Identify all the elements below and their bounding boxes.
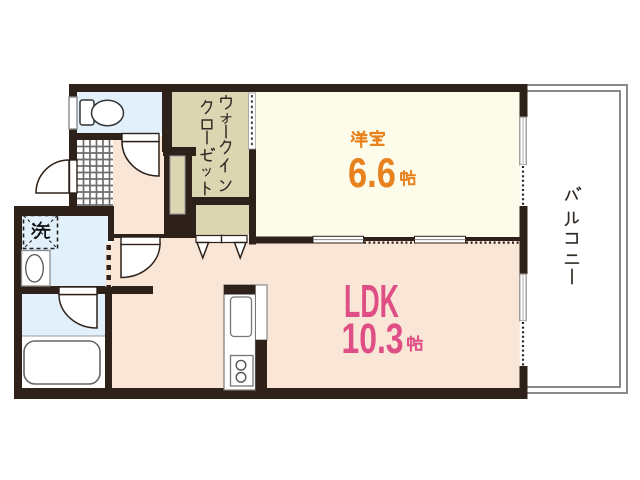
svg-text:6.6: 6.6 <box>348 150 396 197</box>
svg-text:10.3: 10.3 <box>342 315 404 363</box>
